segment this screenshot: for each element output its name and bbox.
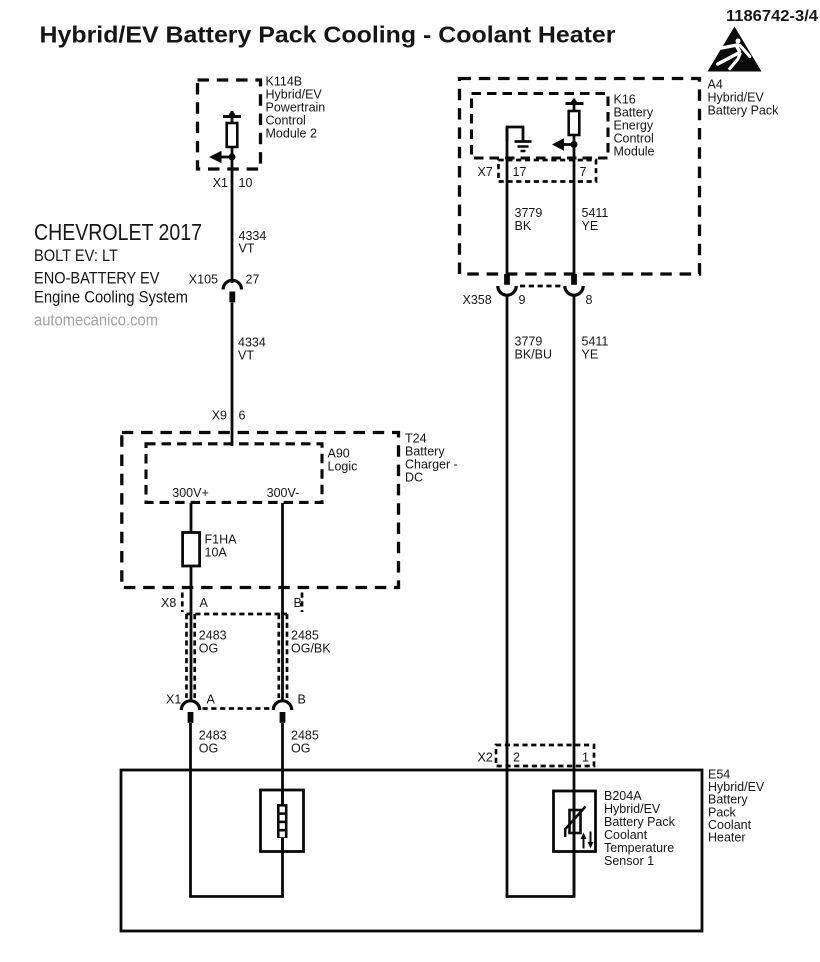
svg-text:Battery: Battery	[405, 445, 445, 459]
svg-text:Module: Module	[614, 145, 655, 159]
svg-text:4334: 4334	[238, 336, 266, 350]
svg-text:B: B	[298, 693, 306, 707]
svg-text:OG: OG	[199, 742, 218, 756]
svg-text:Coolant: Coolant	[604, 828, 648, 842]
svg-text:ENO-BATTERY EV: ENO-BATTERY EV	[34, 268, 160, 287]
svg-text:X105: X105	[189, 273, 218, 287]
svg-text:X1: X1	[213, 176, 228, 190]
svg-text:7: 7	[580, 165, 587, 179]
svg-text:Charger -: Charger -	[405, 458, 458, 472]
svg-text:F1HA: F1HA	[205, 533, 238, 547]
svg-text:1: 1	[582, 751, 589, 765]
svg-text:Energy: Energy	[614, 119, 654, 133]
svg-text:300V+: 300V+	[172, 486, 209, 500]
svg-text:5411: 5411	[582, 206, 609, 220]
svg-text:A90: A90	[328, 447, 350, 461]
svg-text:K16: K16	[614, 93, 636, 107]
svg-text:X7: X7	[478, 165, 493, 179]
svg-text:BK/BU: BK/BU	[515, 348, 553, 362]
svg-text:Hybrid/EV Battery Pack Cooling: Hybrid/EV Battery Pack Cooling - Coolant…	[40, 22, 616, 48]
svg-text:5411: 5411	[582, 335, 609, 349]
svg-text:DC: DC	[405, 471, 423, 485]
svg-text:Battery Pack: Battery Pack	[708, 104, 780, 118]
svg-text:2483: 2483	[199, 729, 227, 743]
svg-text:Battery: Battery	[614, 106, 654, 120]
svg-text:10A: 10A	[205, 546, 228, 560]
svg-text:X358: X358	[463, 293, 492, 307]
svg-text:Logic: Logic	[328, 460, 358, 474]
svg-text:Module 2: Module 2	[266, 127, 317, 141]
svg-text:2485: 2485	[291, 629, 319, 643]
svg-text:VT: VT	[239, 242, 255, 256]
svg-text:9: 9	[519, 293, 526, 307]
svg-text:Control: Control	[266, 114, 306, 128]
svg-text:2483: 2483	[199, 629, 227, 643]
svg-text:2485: 2485	[291, 729, 319, 743]
svg-text:17: 17	[513, 165, 527, 179]
svg-text:YE: YE	[582, 219, 599, 233]
svg-text:BK: BK	[515, 219, 532, 233]
svg-text:automecanico.com: automecanico.com	[34, 311, 158, 330]
svg-text:BOLT EV: LT: BOLT EV: LT	[34, 246, 118, 265]
svg-text:Sensor 1: Sensor 1	[604, 854, 654, 868]
svg-text:A4: A4	[708, 78, 723, 92]
svg-text:1186742-3/4: 1186742-3/4	[726, 8, 818, 25]
svg-text:Hybrid/EV: Hybrid/EV	[266, 88, 323, 102]
svg-text:3779: 3779	[515, 206, 543, 220]
svg-text:A: A	[207, 693, 216, 707]
svg-text:Heater: Heater	[708, 831, 746, 845]
svg-text:X1: X1	[166, 693, 181, 707]
svg-text:27: 27	[246, 273, 260, 287]
svg-text:B: B	[294, 596, 302, 610]
svg-text:300V-: 300V-	[267, 486, 300, 500]
svg-text:3779: 3779	[515, 335, 543, 349]
svg-text:Temperature: Temperature	[604, 841, 674, 855]
svg-text:OG/BK: OG/BK	[291, 642, 331, 656]
svg-text:OG: OG	[291, 742, 310, 756]
svg-text:CHEVROLET 2017: CHEVROLET 2017	[34, 219, 202, 245]
svg-text:Engine Cooling System: Engine Cooling System	[34, 288, 188, 307]
svg-text:VT: VT	[238, 349, 254, 363]
svg-text:OG: OG	[199, 642, 218, 656]
svg-text:B204A: B204A	[604, 789, 642, 803]
svg-text:6: 6	[239, 409, 246, 423]
svg-text:X2: X2	[478, 751, 493, 765]
svg-text:Hybrid/EV: Hybrid/EV	[604, 802, 661, 816]
svg-text:2: 2	[513, 751, 520, 765]
svg-text:A: A	[200, 596, 209, 610]
svg-text:8: 8	[586, 293, 593, 307]
svg-text:X8: X8	[161, 596, 176, 610]
svg-text:Battery Pack: Battery Pack	[604, 815, 676, 829]
svg-text:YE: YE	[582, 348, 599, 362]
svg-text:X9: X9	[212, 409, 227, 423]
svg-text:K114B: K114B	[266, 75, 303, 89]
svg-text:10: 10	[239, 176, 253, 190]
svg-text:T24: T24	[405, 432, 427, 446]
svg-text:Control: Control	[614, 132, 654, 146]
svg-text:Powertrain: Powertrain	[266, 101, 326, 115]
svg-text:Hybrid/EV: Hybrid/EV	[708, 91, 765, 105]
